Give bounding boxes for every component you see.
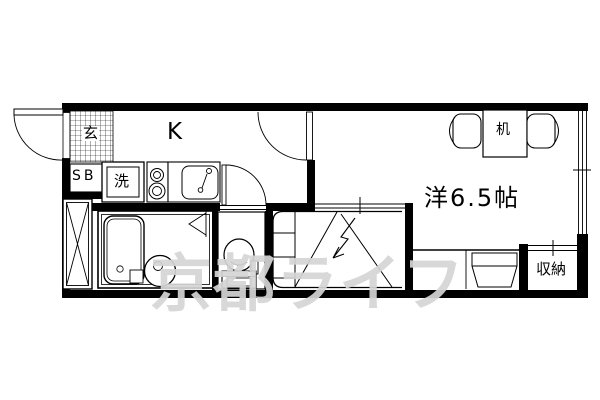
label-storage: 収納	[536, 262, 566, 277]
wall-toilet-corner	[266, 203, 315, 211]
toilet-door	[220, 165, 266, 210]
entrance-door-jamb	[63, 113, 70, 159]
label-shoe-cabinet: SB	[72, 169, 97, 183]
entrance-door	[14, 109, 70, 160]
floor-plan: 玄 SB 洗 K 机 洋6.5帖 収納 京都ライフ	[0, 0, 600, 400]
toilet-door-sill	[220, 206, 266, 210]
wall-below-sb	[62, 192, 103, 199]
wall-bath-kitchen	[90, 203, 220, 211]
two-burner-stove	[147, 162, 168, 202]
room-door-leaf	[307, 112, 313, 160]
toilet-door-swing-arc	[226, 165, 266, 205]
label-laundry: 洗	[114, 174, 129, 189]
entrance-door-leaf	[14, 109, 63, 115]
chair-right	[527, 114, 555, 148]
entrance-door-swing-arc	[14, 115, 63, 160]
pipe-space	[63, 199, 92, 289]
window-glass-lines	[579, 110, 587, 234]
bathtub-drain	[117, 266, 123, 272]
agency-watermark: 京都ライフ	[150, 253, 465, 315]
wall-storage-left	[519, 244, 528, 298]
room-door	[258, 111, 316, 160]
label-entrance: 玄	[82, 126, 99, 141]
under-loft-chest	[472, 253, 517, 287]
bath-faucet	[130, 270, 143, 283]
chair-left	[453, 114, 481, 148]
label-desk: 机	[496, 123, 510, 137]
label-main-room: 洋6.5帖	[424, 186, 520, 210]
label-kitchen: K	[167, 121, 182, 144]
kitchen-sink	[168, 162, 220, 202]
window-right	[573, 110, 591, 234]
room-door-swing-arc	[258, 112, 306, 160]
storage-room	[528, 240, 577, 256]
toilet-door-leaf	[222, 165, 226, 205]
wall-right-lower	[577, 234, 588, 298]
